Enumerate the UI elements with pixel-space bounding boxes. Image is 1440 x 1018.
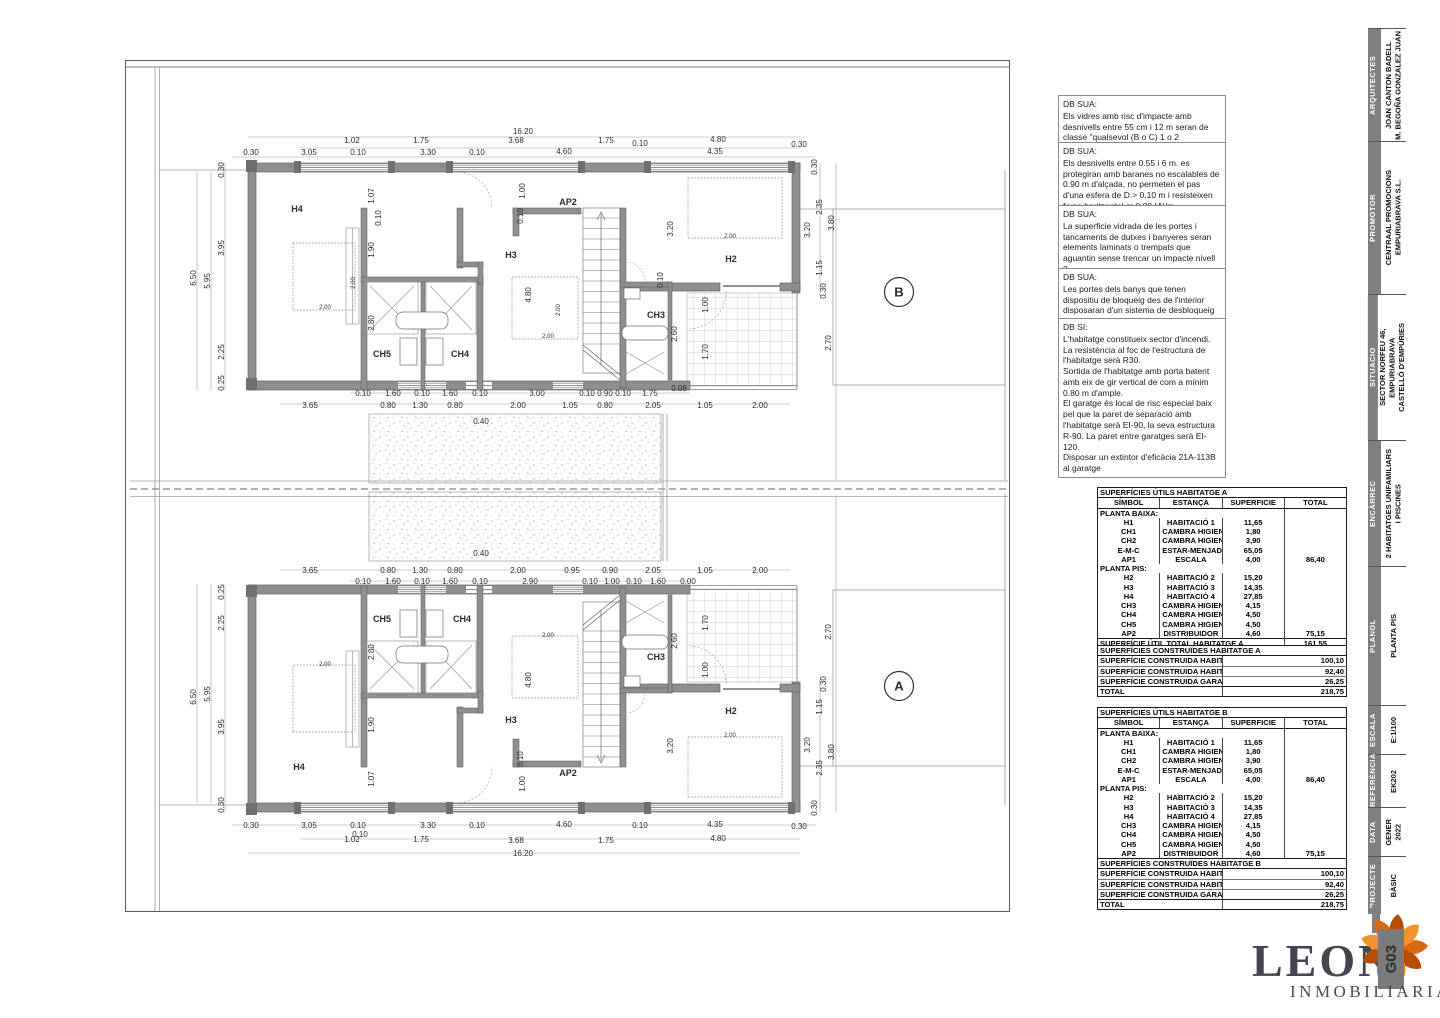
dimension-label: 0.10 xyxy=(632,139,648,148)
dimension-label: 1.00 xyxy=(518,183,527,199)
table-title: SUPERFÍCIES CONSTRUÏDES HABITATGE A xyxy=(1098,646,1347,656)
dimension-label: 1.90 xyxy=(367,242,376,258)
dimension-label: 4.60 xyxy=(556,820,572,829)
dimension-label: 16.20 xyxy=(513,127,534,136)
dimension-label: 3.05 xyxy=(301,148,317,157)
dimension-label: 1.30 xyxy=(412,566,428,575)
room-label: H3 xyxy=(505,250,517,260)
title-block-label: ENCÀRREC xyxy=(1368,441,1381,566)
room-label: AP2 xyxy=(559,197,577,207)
note-title: DB SI: xyxy=(1063,322,1221,333)
dimension-label: 0.30 xyxy=(243,821,259,830)
sheet-number: G03 xyxy=(1383,945,1400,973)
built-surface-table: SUPERFÍCIES CONSTRUÏDES HABITATGE ASUPER… xyxy=(1097,645,1347,697)
table-row: E-M-CESTAR-MENJADOR-CUINA65,05 xyxy=(1098,546,1347,555)
dimension-label: 0.30 xyxy=(243,148,259,157)
dimension-label: 0.10 xyxy=(516,751,525,767)
dimension-label: 0.80 xyxy=(380,566,396,575)
table-title: SUPERFÍCIES CONSTRUÏDES HABITATGE B xyxy=(1098,859,1347,869)
dimension-label: 1.30 xyxy=(412,401,428,410)
dimension-label: 0.10 xyxy=(352,830,368,839)
table-row: CH3CAMBRA HIGIENICA 34,15 xyxy=(1098,821,1347,830)
dimension-label: 1.60 xyxy=(442,577,458,586)
dimension-label: 0.10 xyxy=(656,272,665,288)
dimension-label: 0.10 xyxy=(414,389,430,398)
title-block-label: SITUACIO xyxy=(1368,295,1378,440)
room-label: CH4 xyxy=(451,349,469,359)
dimension-label: 16.20 xyxy=(513,849,534,858)
table-title: SUPERFÍCIES ÚTILS HABITATGE A xyxy=(1098,488,1347,498)
dimension-label: 3.65 xyxy=(302,566,318,575)
table-row: SUPERFÍCIE CONSTRUIDA GARATGE26,25 xyxy=(1098,889,1347,899)
gravel-patio xyxy=(369,492,661,561)
table-row: H1HABITACIÓ 111,65 xyxy=(1098,518,1347,527)
dimension-label: 0.30 xyxy=(810,159,819,175)
table-surfaces-built-a: SUPERFÍCIES CONSTRUÏDES HABITATGE ASUPER… xyxy=(1097,645,1347,697)
dimension-label: 0.30 xyxy=(810,800,819,816)
table-row: AP1ESCALA4,0086,40 xyxy=(1098,555,1347,564)
dimension-label: 0.08 xyxy=(671,384,687,393)
title-block-section-data: DATAGENER 2022 xyxy=(1368,807,1406,856)
title-block-value: E:1/100 xyxy=(1389,717,1398,743)
dimension-label: 2.00 xyxy=(724,733,736,739)
title-block-value: JOAN CANTON BADELL M. BEGOÑA GONZALEZ JU… xyxy=(1384,31,1403,140)
title-block-value: EK202 xyxy=(1389,770,1398,793)
dimension-label: 3.30 xyxy=(420,821,436,830)
dimension-label: 0.80 xyxy=(597,401,613,410)
dimension-label: 2.00 xyxy=(351,277,357,289)
table-row: SUPERFÍCIE CONSTRUIDA HABITATGE A PLANTA… xyxy=(1098,656,1347,666)
dimension-label: 1.60 xyxy=(442,389,458,398)
room-label: CH5 xyxy=(373,349,391,359)
dimension-label: 3.80 xyxy=(827,215,836,231)
dimension-label: 2.00 xyxy=(752,566,768,575)
plot-marker-letter: B xyxy=(894,285,903,300)
dimension-label: 2.70 xyxy=(824,335,833,351)
dimension-label: 0.25 xyxy=(217,375,226,391)
table-row: CH5CAMBRA HIGIENICA 54,50 xyxy=(1098,840,1347,849)
note-title: DB SUA: xyxy=(1063,99,1221,110)
dimension-label: 1.90 xyxy=(367,717,376,733)
dimension-label: 3.20 xyxy=(666,221,675,237)
title-block-label: ARQUITECTES xyxy=(1368,29,1381,141)
title-block: ARQUITECTESJOAN CANTON BADELL M. BEGOÑA … xyxy=(1368,28,1406,914)
table-surfaces-utils-a: SUPERFÍCIES ÚTILS HABITATGE ASÍMBOLESTAN… xyxy=(1097,487,1347,649)
dimension-label: 2.35 xyxy=(815,199,824,215)
note-body: La superficie vidrada de les portes i ta… xyxy=(1063,221,1221,275)
table-total-row: TOTAL218,75 xyxy=(1098,687,1347,697)
dimension-label: 1.15 xyxy=(815,699,824,715)
dimension-label: 0.40 xyxy=(473,417,489,426)
dimension-label: 2.80 xyxy=(367,315,376,331)
title-block-value: CENTRAAL PROMOCIONS EMPURIABRAVA S.L. xyxy=(1384,170,1403,265)
table-row: H3HABITACIÓ 314,35 xyxy=(1098,803,1347,812)
table-row: H4HABITACIÓ 427,85 xyxy=(1098,592,1347,601)
dimension-label: 0.30 xyxy=(217,162,226,178)
table-row: CH4CAMBRA HIGIENICA 44,50 xyxy=(1098,830,1347,839)
dimension-label: 0.30 xyxy=(819,676,828,692)
dimension-label: 1.75 xyxy=(413,835,429,844)
dimension-label: 0.95 xyxy=(564,566,580,575)
dimension-label: 2.25 xyxy=(217,615,226,631)
title-block-section-promotor: PROMOTORCENTRAAL PROMOCIONS EMPURIABRAVA… xyxy=(1368,141,1406,294)
table-row: SUPERFÍCIE CONSTRUIDA GARATGE26,25 xyxy=(1098,676,1347,686)
note-title: DB SUA: xyxy=(1063,209,1221,220)
title-block-section-planol: PLANOLPLANTA PIS xyxy=(1368,566,1406,705)
dimension-label: 1.05 xyxy=(697,401,713,410)
dimension-label: 2.00 xyxy=(752,401,768,410)
dimension-label: 3.20 xyxy=(803,737,812,753)
table-row: CH3CAMBRA HIGIENICA 34,15 xyxy=(1098,601,1347,610)
dimension-label: 5.95 xyxy=(203,686,212,702)
dimension-label: 0.10 xyxy=(472,389,488,398)
section-row: PLANTA PIS: xyxy=(1098,564,1285,573)
title-block-value: GENER 2022 xyxy=(1384,819,1403,846)
dimension-label: 3.68 xyxy=(508,136,524,145)
dimension-label: 0.30 xyxy=(791,140,807,149)
dimension-label: 0.10 xyxy=(472,577,488,586)
dimension-label: 3.20 xyxy=(803,222,812,238)
dimension-label: 1.15 xyxy=(815,260,824,276)
room-label: H2 xyxy=(725,706,737,716)
table-row: CH1CAMBRA HIGIENICA 11,80 xyxy=(1098,527,1347,536)
dimension-label: 1.05 xyxy=(697,566,713,575)
dimension-label: 2.00 xyxy=(319,305,331,311)
title-block-section-escala: ESCALAE:1/100 xyxy=(1368,705,1406,754)
dimension-label: 3.30 xyxy=(420,148,436,157)
dimension-label: 5.95 xyxy=(203,273,212,289)
dimension-label: 6.50 xyxy=(189,270,198,286)
note: DB SI:L'habitatge constitueix sector d'i… xyxy=(1058,318,1226,478)
dimension-label: 0.10 xyxy=(516,208,525,224)
table-row: CH2CAMBRA HIGIENICA 23,90 xyxy=(1098,536,1347,545)
dimension-label: 2.00 xyxy=(319,662,331,668)
dimension-label: 2.00 xyxy=(542,334,554,340)
dimension-label: 0.90 xyxy=(602,566,618,575)
dimension-label: 1.60 xyxy=(650,577,666,586)
room-label: CH3 xyxy=(647,652,665,662)
dimension-label: 1.70 xyxy=(701,615,710,631)
title-block-value: BÀSIC xyxy=(1389,874,1398,897)
table-row: H2HABITACIÓ 215,20 xyxy=(1098,573,1347,582)
dimension-label: 0.10 xyxy=(350,148,366,157)
dimension-label: 0.25 xyxy=(217,584,226,600)
dimension-label: 3.00 xyxy=(529,389,545,398)
dimension-label: 2.00 xyxy=(510,566,526,575)
dimension-label: 0.10 xyxy=(355,389,371,398)
dimension-label: 0.30 xyxy=(791,822,807,831)
table-row: CH1CAMBRA HIGIENICA 11,80 xyxy=(1098,747,1347,756)
drawing-sheet: 16.201.021.753.681.750.104.800.303.050.1… xyxy=(0,0,1440,1018)
dimension-label: 1.07 xyxy=(367,188,376,204)
title-block-label: PROMOTOR xyxy=(1368,142,1381,294)
table-surfaces-built-b: SUPERFÍCIES CONSTRUÏDES HABITATGE BSUPER… xyxy=(1097,858,1347,910)
table-row: SUPERFÍCIE CONSTRUIDA HABITATGE A PLANTA… xyxy=(1098,666,1347,676)
note-body: Els desnivells entre 0.55 i 6 m. es prot… xyxy=(1063,158,1221,212)
table-row: CH4CAMBRA HIGIENICA 44,50 xyxy=(1098,610,1347,619)
dimension-label: 4.80 xyxy=(710,135,726,144)
dimension-label: 0.10 xyxy=(350,821,366,830)
room-label: AP2 xyxy=(559,768,577,778)
room-label: CH5 xyxy=(373,614,391,624)
dimension-label: 0.10 xyxy=(632,821,648,830)
dimension-label: 2.25 xyxy=(217,344,226,360)
dimension-label: 2.05 xyxy=(645,566,661,575)
dimension-label: 3.95 xyxy=(217,719,226,735)
dimension-label: 0.30 xyxy=(217,797,226,813)
surface-table: SUPERFÍCIES ÚTILS HABITATGE BSÍMBOLESTAN… xyxy=(1097,707,1347,869)
room-label: CH4 xyxy=(453,614,471,624)
table-row: SUPERFÍCIE CONSTRUIDA HABITATGE A PLANTA… xyxy=(1098,869,1347,879)
dimension-label: 6.50 xyxy=(189,689,198,705)
dimension-label: 0.80 xyxy=(447,401,463,410)
dimension-label: 0.90 xyxy=(597,389,613,398)
dimension-label: 4.60 xyxy=(556,147,572,156)
dimension-label: 4.80 xyxy=(524,287,533,303)
dimension-label: 2.00 xyxy=(724,234,736,240)
dimension-label: 0.10 xyxy=(582,577,598,586)
title-block-value: SECTOR NORFEU 46, EMPURIABRAVA CASTELLÓ … xyxy=(1378,323,1406,412)
room-label: CH3 xyxy=(647,310,665,320)
dimension-label: 1.07 xyxy=(367,771,376,787)
dimension-label: 2.80 xyxy=(367,644,376,660)
dimension-label: 0.10 xyxy=(374,210,383,226)
dimension-label: 0.10 xyxy=(579,389,595,398)
title-block-label: DATA xyxy=(1368,808,1381,856)
table-row: H2HABITACIÓ 215,20 xyxy=(1098,793,1347,802)
dimension-label: 2.60 xyxy=(670,326,679,342)
dimension-label: 3.65 xyxy=(302,401,318,410)
dimension-label: 0.10 xyxy=(469,148,485,157)
section-row: PLANTA BAIXA: xyxy=(1098,728,1285,738)
title-block-section-arquitectes: ARQUITECTESJOAN CANTON BADELL M. BEGOÑA … xyxy=(1368,28,1406,141)
built-surface-table: SUPERFÍCIES CONSTRUÏDES HABITATGE BSUPER… xyxy=(1097,858,1347,910)
dimension-label: 1.75 xyxy=(413,136,429,145)
dimension-label: 3.80 xyxy=(827,744,836,760)
dimension-label: 4.80 xyxy=(710,834,726,843)
dimension-label: 2.05 xyxy=(645,401,661,410)
dimension-label: 1.60 xyxy=(385,389,401,398)
dimension-label: 1.75 xyxy=(598,836,614,845)
table-row: H4HABITACIÓ 427,85 xyxy=(1098,812,1347,821)
table-total-row: TOTAL218,75 xyxy=(1098,900,1347,910)
title-block-section-referència: REFERÈNCIAEK202 xyxy=(1368,754,1406,807)
dimension-label: 4.35 xyxy=(707,147,723,156)
note: DB SUA:Els vidres amb risc d'impacte amb… xyxy=(1058,95,1226,147)
dimension-label: 4.35 xyxy=(707,820,723,829)
note-title: DB SUA: xyxy=(1063,146,1221,157)
dimension-label: 3.20 xyxy=(666,738,675,754)
dimension-label: 3.05 xyxy=(301,821,317,830)
dimension-label: 2.90 xyxy=(522,577,538,586)
title-block-label: PLANOL xyxy=(1368,567,1381,705)
table-row: AP1ESCALA4,0086,40 xyxy=(1098,775,1347,784)
table-row: CH2CAMBRA HIGIENICA 23,90 xyxy=(1098,756,1347,765)
dimension-label: 0.30 xyxy=(819,283,828,299)
table-row: CH5CAMBRA HIGIENICA 54,50 xyxy=(1098,620,1347,629)
dimension-label: 3.68 xyxy=(508,836,524,845)
dimension-label: 3.95 xyxy=(217,240,226,256)
note-title: DB SUA: xyxy=(1063,272,1221,283)
dimension-label: 1.75 xyxy=(642,389,658,398)
dimension-label: 1.00 xyxy=(701,662,710,678)
title-block-value: PLANTA PIS xyxy=(1389,614,1398,658)
table-row: SUPERFÍCIE CONSTRUIDA HABITATGE A PLANTA… xyxy=(1098,879,1347,889)
room-label: H4 xyxy=(291,204,303,214)
surface-table: SUPERFÍCIES ÚTILS HABITATGE ASÍMBOLESTAN… xyxy=(1097,487,1347,649)
dimension-label: 0.10 xyxy=(355,577,371,586)
dimension-label: 1.75 xyxy=(598,136,614,145)
gravel-patio xyxy=(369,414,661,483)
dimension-label: 1.70 xyxy=(701,344,710,360)
title-block-label: REFERÈNCIA xyxy=(1368,755,1381,807)
dimension-label: 1.02 xyxy=(344,136,360,145)
title-block-section-situacio: SITUACIOSECTOR NORFEU 46, EMPURIABRAVA C… xyxy=(1368,294,1406,440)
title-block-value: 2 HABITATGES UNIFAMILIARS I PISCINES xyxy=(1384,449,1403,558)
plot-marker-letter: A xyxy=(894,679,904,694)
section-row: PLANTA PIS: xyxy=(1098,784,1285,793)
plan-frame xyxy=(126,61,1010,912)
room-label: H3 xyxy=(505,715,517,725)
table-row: AP2DISTRIBUIDOR4,6075,15 xyxy=(1098,629,1347,639)
title-block-label: ESCALA xyxy=(1368,706,1381,754)
table-title: SUPERFÍCIES ÚTILS HABITATGE B xyxy=(1098,708,1347,718)
dimension-label: 2.35 xyxy=(815,760,824,776)
dimension-label: 2.60 xyxy=(670,633,679,649)
sheet-number-box: G03 xyxy=(1378,929,1404,989)
dimension-label: 1.00 xyxy=(701,297,710,313)
table-surfaces-utils-b: SUPERFÍCIES ÚTILS HABITATGE BSÍMBOLESTAN… xyxy=(1097,707,1347,869)
dimension-label: 1.60 xyxy=(385,577,401,586)
dimension-label: 1.05 xyxy=(562,401,578,410)
section-row: PLANTA BAIXA: xyxy=(1098,508,1285,518)
room-label: H2 xyxy=(725,254,737,264)
table-row: H1HABITACIÓ 111,65 xyxy=(1098,738,1347,747)
dimension-label: 2.70 xyxy=(824,624,833,640)
note-body: Els vidres amb risc d'impacte amb desniv… xyxy=(1063,111,1221,143)
dimension-label: 4.80 xyxy=(524,672,533,688)
dimension-label: 0.10 xyxy=(615,389,631,398)
dimension-label: 0.00 xyxy=(680,577,696,586)
dimension-label: 0.10 xyxy=(626,577,642,586)
dimension-label: 2.00 xyxy=(556,304,562,316)
dimension-label: 1.00 xyxy=(518,776,527,792)
table-row: H3HABITACIÓ 314,35 xyxy=(1098,583,1347,592)
table-row: E-M-CESTAR-MENJADOR-CUINA65,05 xyxy=(1098,766,1347,775)
dimension-label: 0.80 xyxy=(380,401,396,410)
dimension-label: 0.10 xyxy=(414,577,430,586)
room-label: H4 xyxy=(293,762,305,772)
dimension-label: 1.00 xyxy=(604,577,620,586)
floor-plan-svg: 16.201.021.753.681.750.104.800.303.050.1… xyxy=(0,0,1060,1018)
title-block-section-encàrrec: ENCÀRREC2 HABITATGES UNIFAMILIARS I PISC… xyxy=(1368,440,1406,566)
logo-inmobiliaria-text: INMOBILIARIA xyxy=(1290,982,1440,1002)
dimension-label: 2.00 xyxy=(542,633,554,639)
note-body: L'habitatge constitueix sector d'incendi… xyxy=(1063,334,1221,474)
dimension-label: 2.00 xyxy=(510,401,526,410)
dimension-label: 0.80 xyxy=(447,566,463,575)
dimension-label: 0.10 xyxy=(469,821,485,830)
dimension-label: 0.40 xyxy=(473,549,489,558)
